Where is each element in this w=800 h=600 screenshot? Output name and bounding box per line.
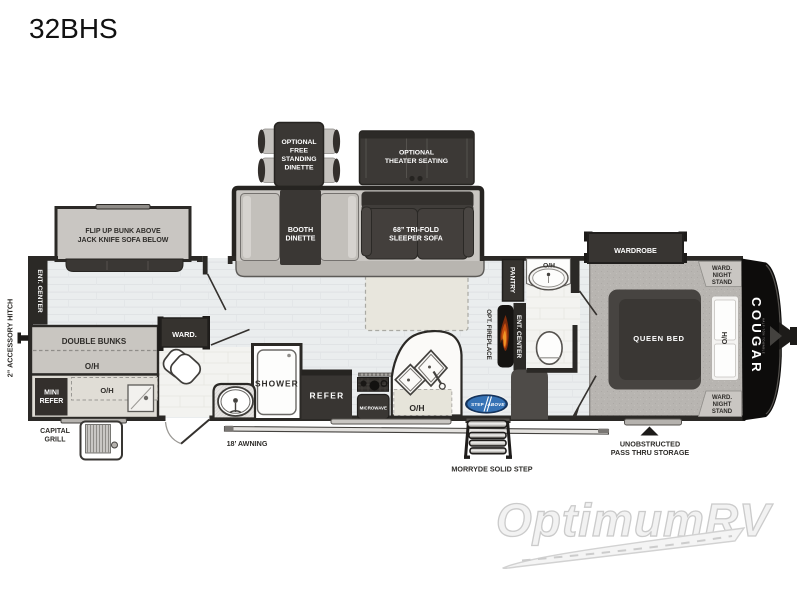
svg-text:NIGHT: NIGHT (713, 402, 732, 408)
svg-text:JACK KNIFE SOFA BELOW: JACK KNIFE SOFA BELOW (78, 237, 169, 244)
svg-text:WARD.: WARD. (712, 395, 732, 401)
svg-text:O/H: O/H (722, 332, 729, 344)
svg-text:O/H: O/H (85, 362, 99, 371)
svg-text:MORRYDE SOLID STEP: MORRYDE SOLID STEP (451, 465, 532, 474)
svg-text:STEP: STEP (471, 402, 484, 407)
svg-text:STAND: STAND (712, 409, 733, 415)
svg-text:O/H: O/H (409, 403, 424, 413)
svg-text:DINETTE: DINETTE (286, 236, 316, 243)
svg-text:18’ AWNING: 18’ AWNING (227, 439, 268, 448)
svg-text:32BHS: 32BHS (29, 13, 118, 44)
svg-text:68” TRI-FOLD: 68” TRI-FOLD (393, 227, 439, 234)
svg-text:STAND: STAND (712, 280, 733, 286)
svg-text:ENT. CENTER: ENT. CENTER (515, 315, 522, 358)
svg-text:FLIP UP BUNK ABOVE: FLIP UP BUNK ABOVE (85, 228, 161, 235)
svg-text:BOOTH: BOOTH (288, 227, 313, 234)
svg-text:CAPITAL: CAPITAL (40, 428, 71, 435)
svg-text:MICROWAVE: MICROWAVE (360, 406, 387, 411)
svg-text:O/H: O/H (100, 386, 113, 395)
svg-text:O/H: O/H (543, 263, 555, 270)
svg-text:PANTRY: PANTRY (509, 267, 516, 294)
svg-text:ENT. CENTER: ENT. CENTER (36, 269, 43, 312)
svg-text:NIGHT: NIGHT (713, 273, 732, 279)
svg-text:WARD.: WARD. (712, 266, 732, 272)
svg-text:QUEEN BED: QUEEN BED (633, 334, 684, 343)
svg-text:WARD.: WARD. (172, 330, 197, 339)
svg-text:THEATER SEATING: THEATER SEATING (385, 158, 448, 165)
svg-text:DINETTE: DINETTE (284, 165, 314, 172)
svg-text:DOUBLE BUNKS: DOUBLE BUNKS (62, 337, 127, 346)
svg-text:OPT. FIREPLACE: OPT. FIREPLACE (485, 309, 492, 360)
svg-text:HALF-TON TOWABLE: HALF-TON TOWABLE (761, 318, 765, 354)
svg-text:MINI: MINI (44, 390, 59, 397)
svg-text:WARDROBE: WARDROBE (614, 246, 657, 255)
svg-text:OPTIONAL: OPTIONAL (399, 150, 434, 157)
svg-text:REFER: REFER (40, 398, 64, 405)
svg-text:PASS THRU STORAGE: PASS THRU STORAGE (611, 448, 690, 457)
svg-text:2” ACCESSORY HITCH: 2” ACCESSORY HITCH (6, 299, 15, 377)
svg-text:OPTIONAL: OPTIONAL (281, 139, 316, 146)
svg-text:GRILL: GRILL (45, 437, 67, 444)
svg-text:REFER: REFER (310, 391, 345, 401)
svg-text:SLEEPER SOFA: SLEEPER SOFA (389, 236, 443, 243)
svg-text:SHOWER: SHOWER (255, 379, 299, 389)
svg-text:FREE: FREE (290, 148, 309, 155)
svg-text:STANDING: STANDING (282, 156, 317, 163)
